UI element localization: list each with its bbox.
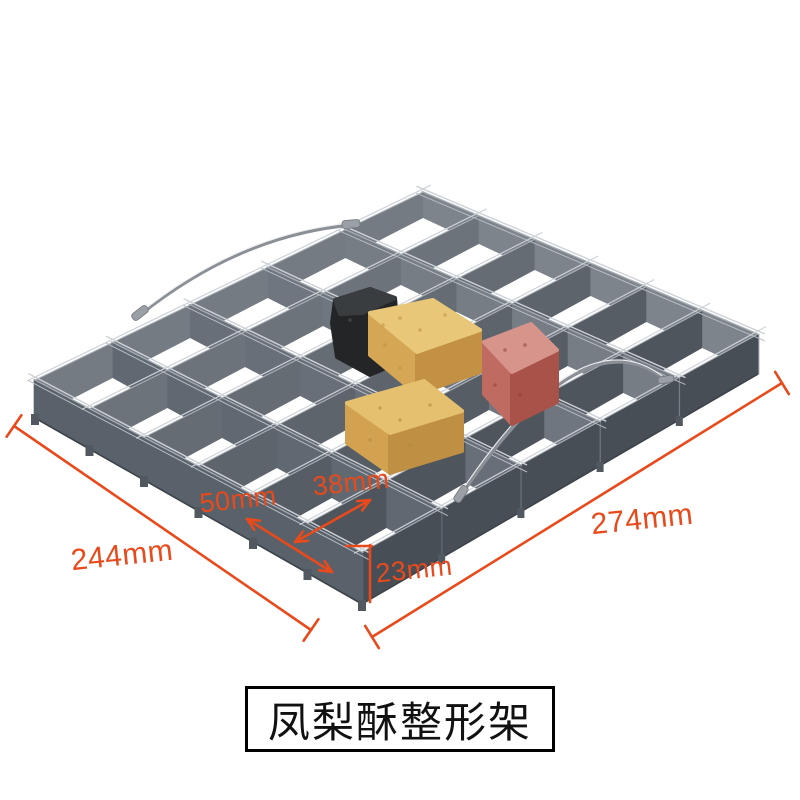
caption-box: 凤梨酥整形架	[245, 686, 555, 752]
caption-text: 凤梨酥整形架	[268, 689, 532, 750]
product-image: 244mm 274mm 50mm 38mm 23mm 凤梨酥整形架	[0, 0, 800, 800]
product-photo	[0, 0, 800, 800]
